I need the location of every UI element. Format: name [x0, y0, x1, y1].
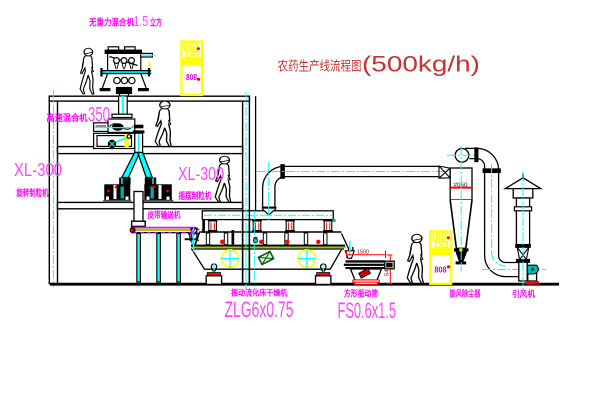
svg-text:1.5: 1.5 — [134, 14, 149, 30]
svg-text:农药生产线流程图: 农药生产线流程图 — [278, 59, 362, 74]
svg-text:1500: 1500 — [357, 250, 369, 256]
svg-text:高速混合机: 高速混合机 — [47, 112, 88, 123]
svg-text:引风机: 引风机 — [512, 289, 535, 299]
svg-text:方形振动筛: 方形振动筛 — [344, 289, 378, 299]
svg-text:摇摆制粒机: 摇摆制粒机 — [179, 190, 212, 201]
svg-text:皮带输送机: 皮带输送机 — [147, 210, 181, 220]
svg-text:旋风除尘器: 旋风除尘器 — [449, 289, 481, 299]
svg-text:350: 350 — [88, 104, 110, 127]
svg-text:XL-300: XL-300 — [14, 159, 62, 180]
svg-text:立方: 立方 — [150, 17, 162, 28]
svg-text:808: 808 — [435, 266, 447, 275]
svg-text:ZLG6x0.75: ZLG6x0.75 — [225, 297, 294, 322]
svg-text:#060: #060 — [454, 182, 468, 188]
svg-text:XL-300: XL-300 — [178, 163, 224, 184]
svg-text:振动流化床干燥机: 振动流化床干燥机 — [231, 288, 288, 298]
svg-text:808: 808 — [186, 73, 197, 82]
svg-text:FS0.6x1.5: FS0.6x1.5 — [338, 298, 397, 323]
svg-text:旋转制粒机: 旋转制粒机 — [16, 187, 49, 198]
svg-text:无重力混合机: 无重力混合机 — [88, 17, 134, 28]
svg-text:(500kg/h): (500kg/h) — [362, 52, 480, 77]
